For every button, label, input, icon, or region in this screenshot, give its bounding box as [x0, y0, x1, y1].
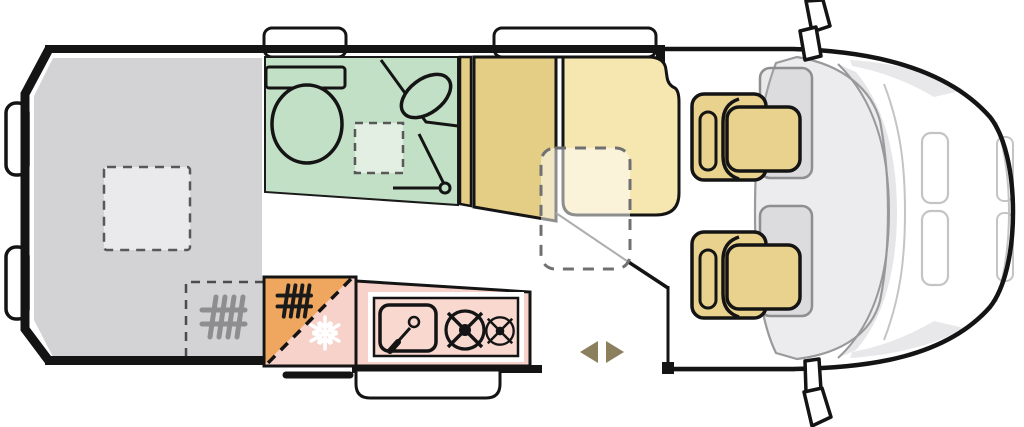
entry-step — [356, 370, 500, 398]
wardrobe-panel-narrow — [460, 57, 471, 206]
bottom-wall — [45, 356, 270, 365]
driver-seat — [692, 68, 812, 180]
toilet — [272, 85, 342, 163]
fridge-heater-block — [264, 277, 356, 366]
kitchen-block — [356, 281, 530, 366]
shower-tray — [355, 123, 403, 173]
grille-lower — [922, 211, 948, 285]
grille-upper — [922, 133, 948, 203]
table — [541, 148, 630, 269]
cab — [663, 49, 1013, 369]
passenger-seat — [692, 206, 812, 318]
bathroom — [265, 57, 459, 205]
sliding-door-arrows — [580, 341, 624, 363]
roof-vent — [104, 167, 190, 250]
top-wall — [45, 45, 663, 53]
floorplan-canvas — [0, 0, 1024, 427]
mirror-head — [804, 388, 831, 426]
arrow-left-icon — [580, 341, 598, 363]
mirror-arm — [800, 27, 821, 60]
arrow-right-icon — [606, 341, 624, 363]
entry — [286, 365, 542, 398]
floorplan-stage — [0, 0, 1024, 427]
